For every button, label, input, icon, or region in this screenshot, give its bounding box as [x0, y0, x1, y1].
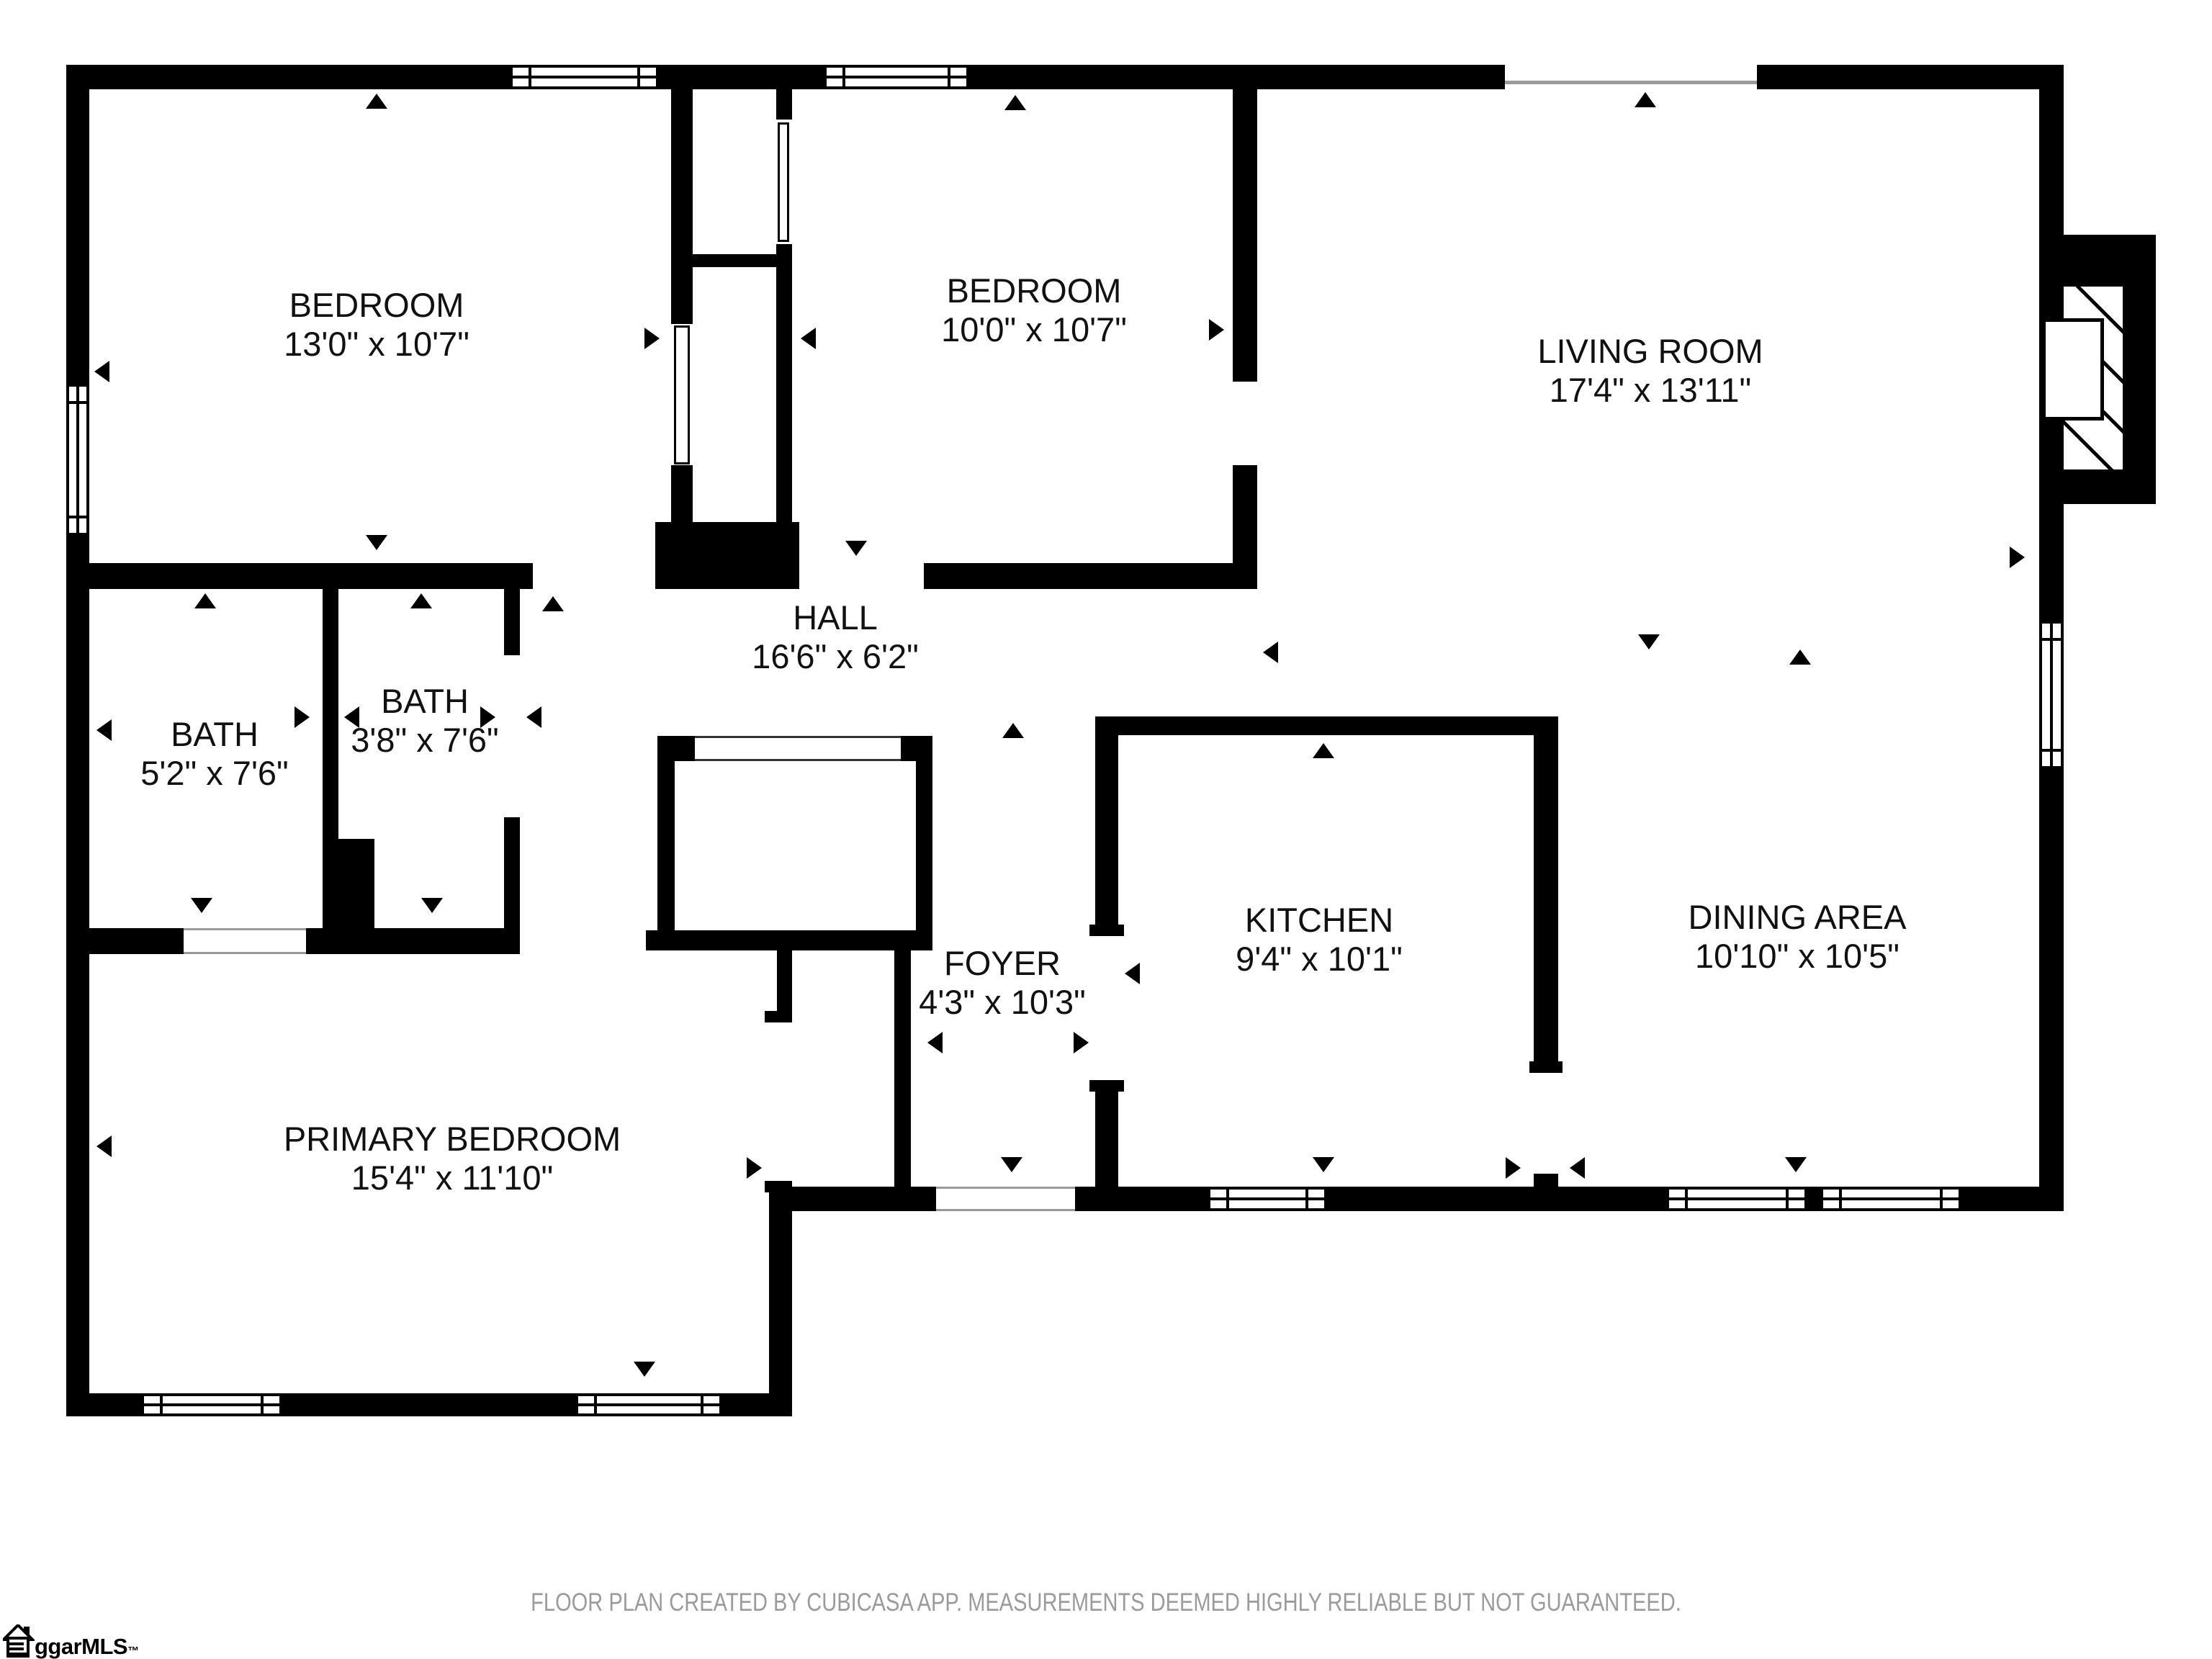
- arrow-down-kitchen-window: [1313, 1157, 1334, 1172]
- room-name: HALL: [752, 598, 919, 637]
- room-dims: 10'0" x 10'7": [941, 310, 1127, 349]
- doorframe-primary-top: [765, 1011, 791, 1022]
- wall-bedroom2-right-upper: [1233, 89, 1257, 382]
- closet2-door-leaf: [674, 325, 690, 464]
- room-name: KITCHEN: [1236, 901, 1403, 940]
- arrow-right-bath1: [295, 706, 310, 728]
- room-dims: 5'2" x 7'6": [140, 754, 289, 793]
- arrow-left-bedroom1-wall: [94, 361, 109, 382]
- mls-logo: ggarMLS ™: [3, 1624, 139, 1658]
- wall-kitchen-left-lower: [1095, 1080, 1118, 1187]
- wall-exterior-top-4: [1757, 65, 2064, 89]
- arrow-up-kitchen: [1313, 743, 1334, 758]
- room-name: PRIMARY BEDROOM: [284, 1120, 621, 1159]
- wall-closet-right-upper: [776, 89, 792, 120]
- arrow-left-hall-living: [1263, 642, 1278, 663]
- room-dims: 9'4" x 10'1": [1236, 940, 1403, 979]
- wall-primary-right-exterior: [769, 1181, 792, 1416]
- wall-bath-bottom-left: [66, 928, 184, 954]
- window-living-right: [2039, 621, 2064, 769]
- room-label-bath-1: BATH 5'2" x 7'6": [140, 715, 289, 793]
- room-dims: 3'8" x 7'6": [351, 721, 499, 760]
- window-bedroom1-top: [510, 65, 659, 89]
- window-dining-bottom-2: [1820, 1187, 1961, 1211]
- arrow-right-bedroom2-wall: [1209, 319, 1224, 341]
- arrow-down-bath2: [421, 898, 443, 913]
- room-label-primary-bedroom: PRIMARY BEDROOM 15'4" x 11'10": [284, 1120, 621, 1197]
- fireplace-right-arm: [2123, 235, 2156, 504]
- arrow-down-foyer-entry: [1001, 1157, 1022, 1172]
- arrow-up-living: [1635, 92, 1656, 107]
- entry-door-threshold: [936, 1187, 1075, 1211]
- doorframe-kitchen-left-top: [1089, 925, 1124, 936]
- window-primary-bottom-1: [141, 1393, 282, 1416]
- arrow-left-closet2: [801, 328, 816, 349]
- room-dims: 10'10" x 10'5": [1689, 937, 1907, 976]
- fireplace-firebox: [2042, 318, 2104, 421]
- window-bedroom2-top: [824, 65, 969, 89]
- arrow-right-living-wall: [2010, 547, 2025, 568]
- wall-exterior-left: [66, 65, 89, 1416]
- wall-exterior-top-1: [66, 65, 510, 89]
- arrow-right-kitchen-right-door: [1506, 1157, 1521, 1179]
- arrow-up-dining: [1789, 649, 1811, 665]
- wall-foyer-left: [894, 950, 911, 1187]
- room-dims: 16'6" x 6'2": [752, 637, 919, 676]
- wall-bedrooms-bottom-left: [89, 563, 533, 589]
- room-name: BEDROOM: [284, 286, 469, 325]
- arrow-left-foyer: [927, 1032, 943, 1053]
- wall-kitchen-left-upper: [1095, 735, 1118, 936]
- arrow-right-primary-door: [747, 1157, 762, 1179]
- arrow-right-foyer: [1074, 1032, 1089, 1053]
- disclaimer-text: FLOOR PLAN CREATED BY CUBICASA APP. MEAS…: [188, 1588, 2024, 1617]
- room-dims: 4'3" x 10'3": [919, 983, 1086, 1022]
- room-name: BATH: [351, 682, 499, 721]
- wall-hallcloset-left: [657, 736, 675, 930]
- room-label-kitchen: KITCHEN 9'4" x 10'1": [1236, 901, 1403, 979]
- logo-trademark: ™: [127, 1646, 139, 1658]
- arrow-down-bedroom2-door: [845, 541, 867, 556]
- room-name: LIVING ROOM: [1537, 332, 1763, 371]
- room-label-bedroom-2: BEDROOM 10'0" x 10'7": [941, 271, 1127, 349]
- window-primary-bottom-2: [575, 1393, 722, 1416]
- room-label-dining-area: DINING AREA 10'10" x 10'5": [1689, 898, 1907, 976]
- wall-bath2-right-lower: [504, 817, 520, 954]
- wall-bath-bottom-right: [306, 928, 520, 954]
- wall-closet-left-upper: [671, 89, 693, 324]
- room-label-bath-2: BATH 3'8" x 7'6": [351, 682, 499, 760]
- wall-bath2-right-upper: [504, 589, 520, 655]
- arrow-up-bath2: [410, 593, 432, 608]
- arrow-up-bedroom1: [366, 94, 387, 109]
- wall-closet-right-lower: [776, 244, 792, 563]
- arrow-left-hall-bath2-door: [526, 706, 541, 728]
- opening-living-top-line: [1505, 81, 1757, 84]
- room-label-bedroom-1: BEDROOM 13'0" x 10'7": [284, 286, 469, 364]
- room-dims: 13'0" x 10'7": [284, 325, 469, 364]
- arrow-up-foyer: [1002, 723, 1024, 738]
- hallcloset-sliding-door: [695, 736, 901, 761]
- wall-exterior-top-2: [659, 65, 824, 89]
- wall-closet-left-lower: [671, 465, 693, 522]
- window-bedroom1-left: [66, 384, 89, 536]
- wall-exterior-top-3: [969, 65, 1505, 89]
- house-icon: [3, 1624, 35, 1658]
- logo-text: ggarMLS: [35, 1635, 127, 1658]
- arrow-left-kitchen-right-door: [1570, 1157, 1585, 1179]
- room-name: FOYER: [919, 944, 1086, 983]
- arrow-down-dining-window: [1785, 1157, 1807, 1172]
- room-label-foyer: FOYER 4'3" x 10'3": [919, 944, 1086, 1022]
- wall-hallcloset-corner-left: [657, 736, 695, 761]
- arrow-up-bedroom2: [1004, 95, 1026, 110]
- window-dining-bottom-1: [1666, 1187, 1807, 1211]
- arrow-up-bath1: [194, 593, 216, 608]
- wall-hallcloset-bottom: [646, 930, 932, 950]
- wall-closet-divider: [671, 254, 776, 267]
- wall-bedroom2-right-lower: [1233, 465, 1257, 589]
- room-dims: 17'4" x 13'11": [1537, 371, 1763, 410]
- doorframe-primary-bottom: [765, 1181, 791, 1192]
- wall-hallcloset-right: [916, 736, 932, 930]
- room-name: BEDROOM: [941, 271, 1127, 310]
- wall-kitchen-right-upper: [1534, 735, 1558, 1073]
- arrow-left-primary-wall: [96, 1136, 112, 1157]
- window-kitchen-bottom: [1208, 1187, 1327, 1211]
- arrow-down-living-dining: [1638, 634, 1660, 649]
- arrow-right-closet2: [644, 328, 660, 349]
- room-dims: 15'4" x 11'10": [284, 1159, 621, 1197]
- arrow-down-bedroom1: [366, 535, 387, 550]
- doorframe-kitchen-right: [1529, 1061, 1563, 1073]
- arrow-left-kitchen-door: [1125, 963, 1140, 984]
- bath1-door-threshold: [184, 928, 306, 954]
- arrow-left-bath1-wall: [96, 719, 112, 741]
- arrow-up-hall-door: [542, 596, 564, 611]
- floor-plan: BEDROOM 13'0" x 10'7" BEDROOM 10'0" x 10…: [0, 0, 2212, 1659]
- room-label-living-room: LIVING ROOM 17'4" x 13'11": [1537, 332, 1763, 410]
- wall-bedrooms-bottom-right: [924, 563, 1257, 589]
- room-label-hall: HALL 16'6" x 6'2": [752, 598, 919, 676]
- wall-kitchen-right-stub: [1534, 1174, 1558, 1187]
- room-name: BATH: [140, 715, 289, 754]
- wall-bath-divider: [323, 589, 338, 839]
- fireplace-bottom-arm: [2064, 469, 2156, 504]
- arrow-down-bath1: [191, 898, 212, 913]
- room-name: DINING AREA: [1689, 898, 1907, 937]
- closet1-door-leaf: [778, 122, 789, 242]
- doorframe-kitchen-left-bottom: [1089, 1080, 1124, 1092]
- wall-kitchen-top: [1095, 716, 1558, 735]
- arrow-down-primary: [634, 1362, 655, 1377]
- opening-living-top: [1505, 65, 1757, 89]
